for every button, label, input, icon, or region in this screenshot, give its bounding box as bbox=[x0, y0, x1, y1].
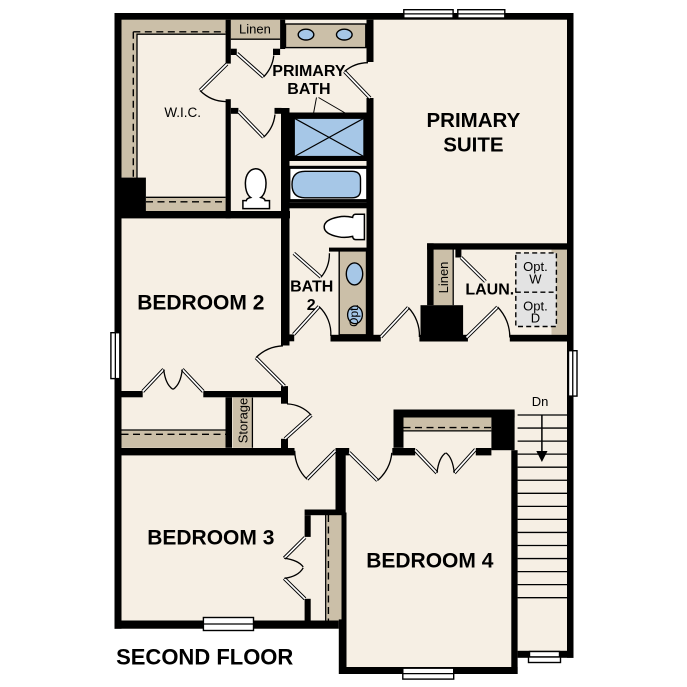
svg-text:W: W bbox=[529, 272, 542, 287]
svg-text:Linen: Linen bbox=[239, 21, 271, 36]
svg-text:2: 2 bbox=[307, 297, 316, 314]
svg-text:LAUN.: LAUN. bbox=[465, 282, 514, 299]
svg-text:D: D bbox=[531, 311, 540, 326]
svg-text:BEDROOM 4: BEDROOM 4 bbox=[366, 549, 494, 572]
svg-text:BATH: BATH bbox=[290, 279, 333, 296]
svg-text:BEDROOM 2: BEDROOM 2 bbox=[137, 292, 264, 315]
svg-text:W.I.C.: W.I.C. bbox=[164, 105, 201, 120]
svg-text:Dn: Dn bbox=[532, 394, 549, 409]
svg-text:Storage: Storage bbox=[235, 398, 250, 444]
svg-text:SECOND FLOOR: SECOND FLOOR bbox=[116, 645, 293, 670]
svg-text:PRIMARY: PRIMARY bbox=[272, 63, 346, 80]
svg-text:BATH: BATH bbox=[287, 81, 330, 98]
svg-text:PRIMARY: PRIMARY bbox=[427, 109, 521, 132]
svg-text:BEDROOM 3: BEDROOM 3 bbox=[147, 527, 274, 550]
svg-text:Linen: Linen bbox=[436, 262, 451, 294]
svg-text:SUITE: SUITE bbox=[443, 133, 503, 156]
svg-text:Opt.: Opt. bbox=[347, 304, 361, 327]
